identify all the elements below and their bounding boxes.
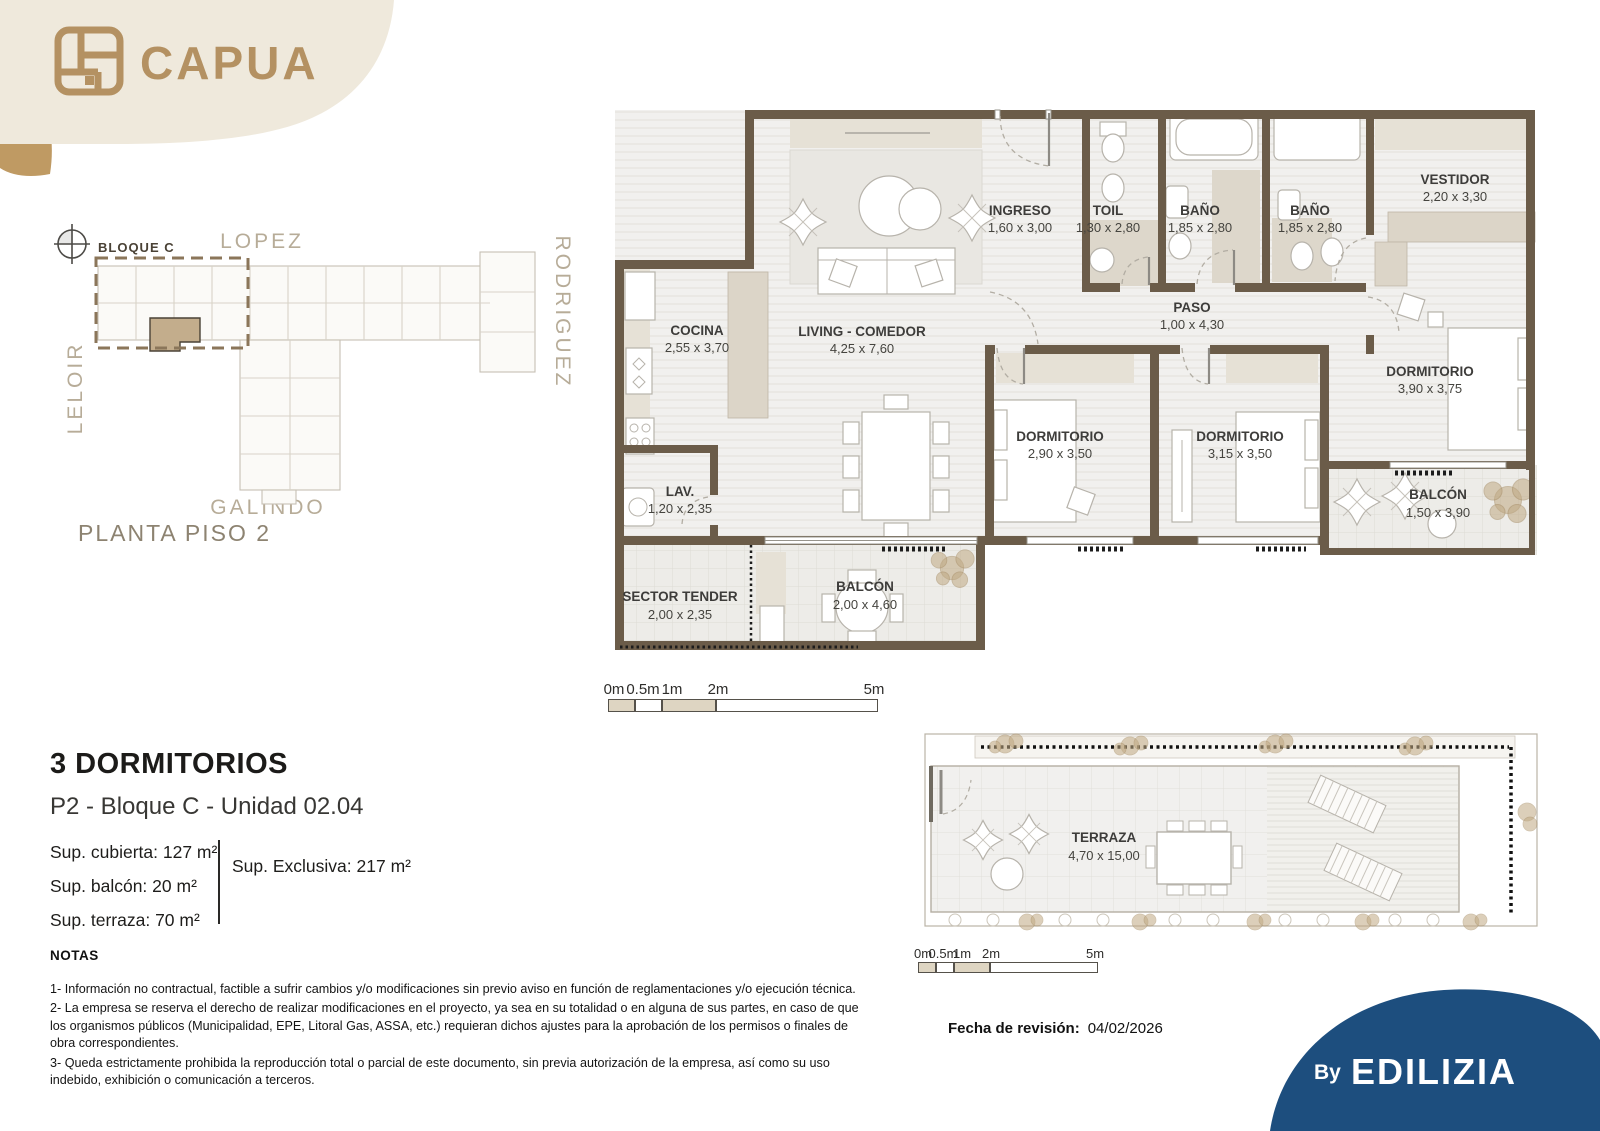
- scale-label: 5m: [1086, 946, 1104, 961]
- footer-brand: By EDILIZIA: [1238, 966, 1600, 1131]
- scale-label: 1m: [662, 681, 683, 698]
- room-dims: 1,30 x 2,80: [1076, 220, 1140, 235]
- room-dims: 2,20 x 3,30: [1423, 189, 1487, 204]
- room-dims: 1,00 x 4,30: [1160, 317, 1224, 332]
- room-dims: 2,00 x 2,35: [648, 607, 712, 622]
- room-name: BAÑO: [1290, 203, 1330, 218]
- area-label: Sup. terraza:: [50, 910, 150, 930]
- area-value: 70 m²: [155, 910, 200, 930]
- note-item: 3- Queda estrictamente prohibida la repr…: [50, 1055, 862, 1090]
- footer-brand-name: EDILIZIA: [1351, 1051, 1517, 1092]
- room-name: DORMITORIO: [1386, 364, 1474, 379]
- highlighted-unit: [150, 318, 200, 351]
- notes-heading: NOTAS: [50, 948, 862, 963]
- note-item: 2- La empresa se reserva el derecho de r…: [50, 1000, 862, 1052]
- scale-label: 2m: [982, 946, 1000, 961]
- room-dims: 1,85 x 2,80: [1278, 220, 1342, 235]
- terrace-plan: TERRAZA 4,70 x 15,00: [915, 722, 1547, 938]
- room-name: COCINA: [670, 323, 723, 338]
- areas-divider: [218, 840, 220, 924]
- room-dims: 1,60 x 3,00: [988, 220, 1052, 235]
- room-name: TOIL: [1093, 203, 1124, 218]
- block-c-label: BLOQUE C: [98, 240, 175, 255]
- brand-name: CAPUA: [140, 37, 319, 89]
- room-dims: 3,90 x 3,75: [1398, 381, 1462, 396]
- area-label: Sup. cubierta:: [50, 842, 158, 862]
- area-label: Sup. balcón:: [50, 876, 147, 896]
- street-left: LELOIR: [64, 342, 87, 435]
- room-name: SECTOR TENDER: [622, 589, 738, 604]
- room-dims: 2,55 x 3,70: [665, 340, 729, 355]
- notes-block: NOTAS 1- Información no contractual, fac…: [50, 948, 862, 1089]
- room-name: LAV.: [666, 484, 695, 499]
- room-name: PASO: [1173, 300, 1210, 315]
- room-dims: 3,15 x 3,50: [1208, 446, 1272, 461]
- area-value: 20 m²: [152, 876, 197, 896]
- plan-caption: PLANTA PISO 2: [78, 520, 271, 547]
- room-name: BALCÓN: [836, 579, 894, 594]
- floorplan-brochure-page: { "brand": { "name": "CAPUA" }, "site_pl…: [0, 0, 1600, 1131]
- site-key-plan: LOPEZ LELOIR RODRIGUEZ GALINDO BLOQUE C: [50, 220, 580, 530]
- room-dims: 1,50 x 3,90: [1406, 505, 1470, 520]
- revision-label: Fecha de revisión:: [948, 1020, 1080, 1037]
- note-item: 1- Información no contractual, factible …: [50, 981, 862, 998]
- north-compass-icon: [54, 224, 90, 264]
- header-logo-area: CAPUA: [0, 0, 540, 190]
- terrace-name: TERRAZA: [1072, 830, 1137, 845]
- exclusive-value: 217 m²: [357, 856, 411, 876]
- terrace-dims: 4,70 x 15,00: [1068, 848, 1140, 863]
- room-dims: 4,25 x 7,60: [830, 341, 894, 356]
- building-footprint: [98, 252, 535, 504]
- main-floor-plan: COCINA 2,55 x 3,70 LIVING - COMEDOR 4,25…: [600, 100, 1545, 660]
- area-value: 127 m²: [163, 842, 217, 862]
- revision-value: 04/02/2026: [1088, 1020, 1163, 1037]
- room-name: BAÑO: [1180, 203, 1220, 218]
- room-dims: 1,20 x 2,35: [648, 501, 712, 516]
- scale-label: 5m: [864, 681, 885, 698]
- street-right: RODRIGUEZ: [551, 236, 574, 389]
- room-name: BALCÓN: [1409, 487, 1467, 502]
- room-name: LIVING - COMEDOR: [798, 324, 926, 339]
- room-name: VESTIDOR: [1420, 172, 1489, 187]
- footer-by: By: [1314, 1061, 1341, 1084]
- room-dims: 2,90 x 3,50: [1028, 446, 1092, 461]
- scale-bar-terrace: 0m 0.5m 1m 2m 5m: [918, 946, 1118, 974]
- exclusive-label: Sup. Exclusiva:: [232, 856, 352, 876]
- scale-bar-segments: [608, 699, 878, 712]
- room-name: DORMITORIO: [1196, 429, 1284, 444]
- scale-label: 0.5m: [626, 681, 659, 698]
- unit-subtitle: P2 - Bloque C - Unidad 02.04: [50, 793, 364, 821]
- scale-label: 1m: [953, 946, 971, 961]
- terrace-deck: [1267, 767, 1458, 911]
- scale-label: 2m: [708, 681, 729, 698]
- unit-title: 3 DORMITORIOS: [50, 748, 364, 781]
- unit-areas: Sup. cubierta: 127 m² Sup. balcón: 20 m²…: [50, 842, 217, 931]
- scale-bar-segments: [918, 962, 1098, 973]
- room-name: INGRESO: [989, 203, 1051, 218]
- exclusive-area: Sup. Exclusiva: 217 m²: [232, 856, 411, 877]
- unit-info-block: 3 DORMITORIOS P2 - Bloque C - Unidad 02.…: [50, 748, 364, 821]
- room-dims: 1,85 x 2,80: [1168, 220, 1232, 235]
- revision-date: Fecha de revisión:04/02/2026: [948, 1020, 1163, 1037]
- street-top: LOPEZ: [220, 230, 304, 253]
- room-dims: 2,00 x 4,60: [833, 597, 897, 612]
- room-name: DORMITORIO: [1016, 429, 1104, 444]
- scale-bar-main: 0m 0.5m 1m 2m 5m: [608, 681, 898, 713]
- scale-label: 0m: [604, 681, 625, 698]
